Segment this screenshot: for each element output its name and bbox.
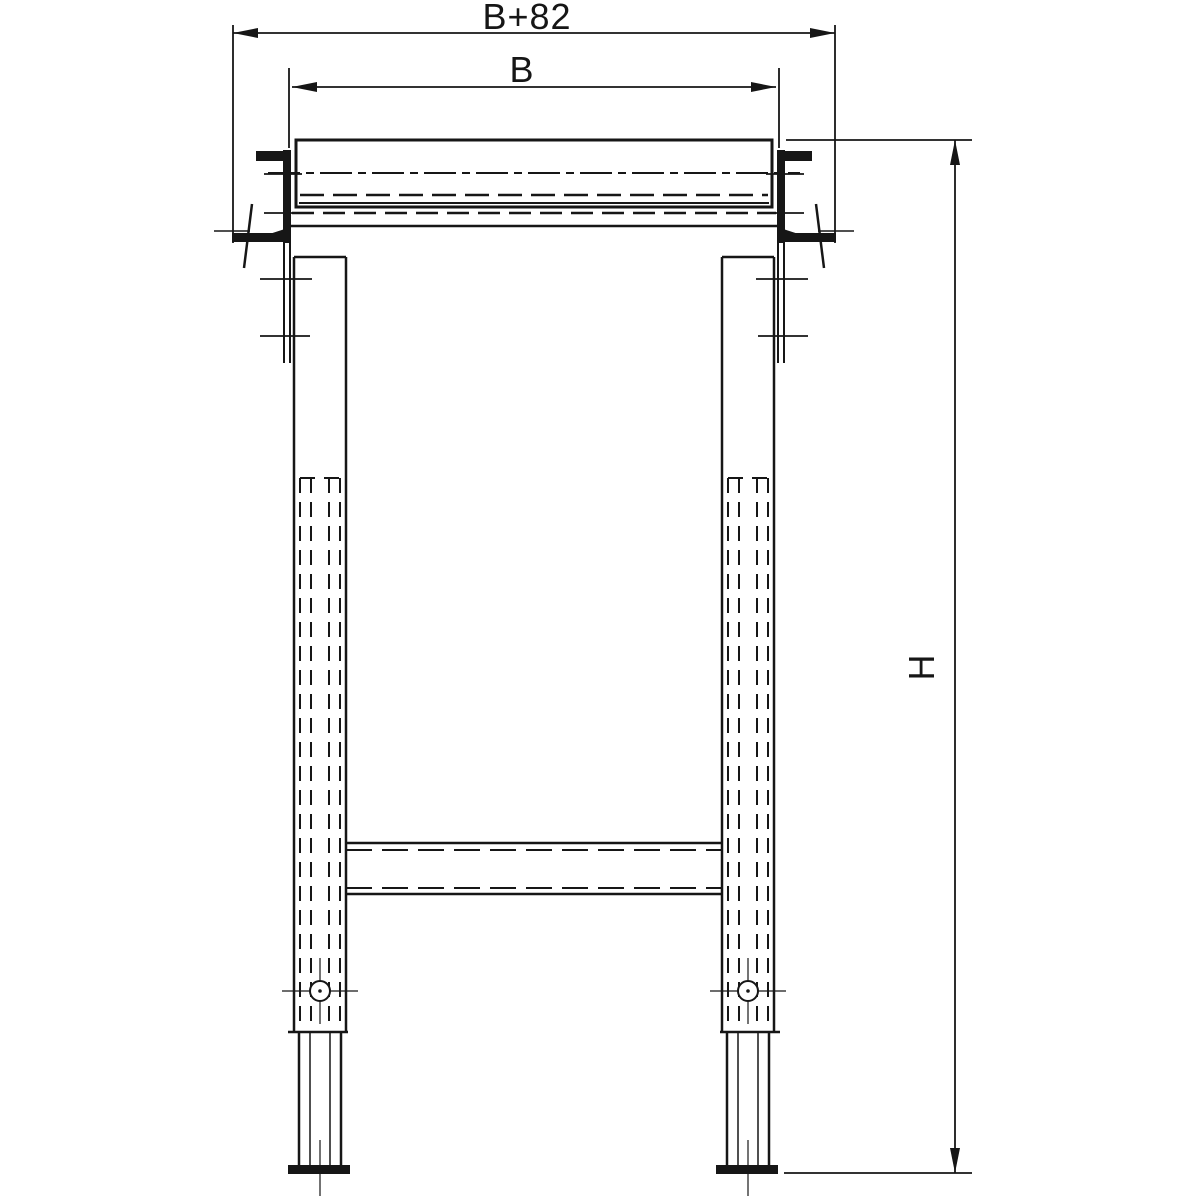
arrowhead-right	[751, 82, 776, 92]
foot-plate	[288, 1165, 350, 1174]
inner-tube-hidden	[300, 478, 340, 1030]
dimension-inner-width: B	[289, 49, 779, 148]
arrowhead-right	[810, 28, 835, 38]
foot-plate	[716, 1165, 778, 1174]
adjustment-hole-center	[746, 989, 750, 993]
cross-brace	[346, 843, 722, 894]
arrowhead-top	[950, 140, 960, 165]
inner-tube-hidden	[728, 478, 768, 1030]
dimension-label-inner-width: B	[509, 49, 534, 90]
arrowhead-left	[292, 82, 317, 92]
conveyor-stand-drawing: B+82 B H	[0, 0, 1200, 1200]
leg-right	[710, 257, 786, 1196]
bracket-hook	[777, 151, 812, 161]
technical-drawing-page: B+82 B H	[0, 0, 1200, 1200]
bracket-hook	[256, 151, 291, 161]
dimension-label-height: H	[901, 654, 942, 681]
roller-assembly	[268, 140, 800, 226]
dimension-height: H	[784, 140, 972, 1173]
leg-left	[282, 257, 358, 1196]
adjustment-hole-center	[318, 989, 322, 993]
arrowhead-bottom	[950, 1148, 960, 1173]
dimension-label-outer-width: B+82	[482, 0, 571, 37]
arrowhead-left	[233, 28, 258, 38]
